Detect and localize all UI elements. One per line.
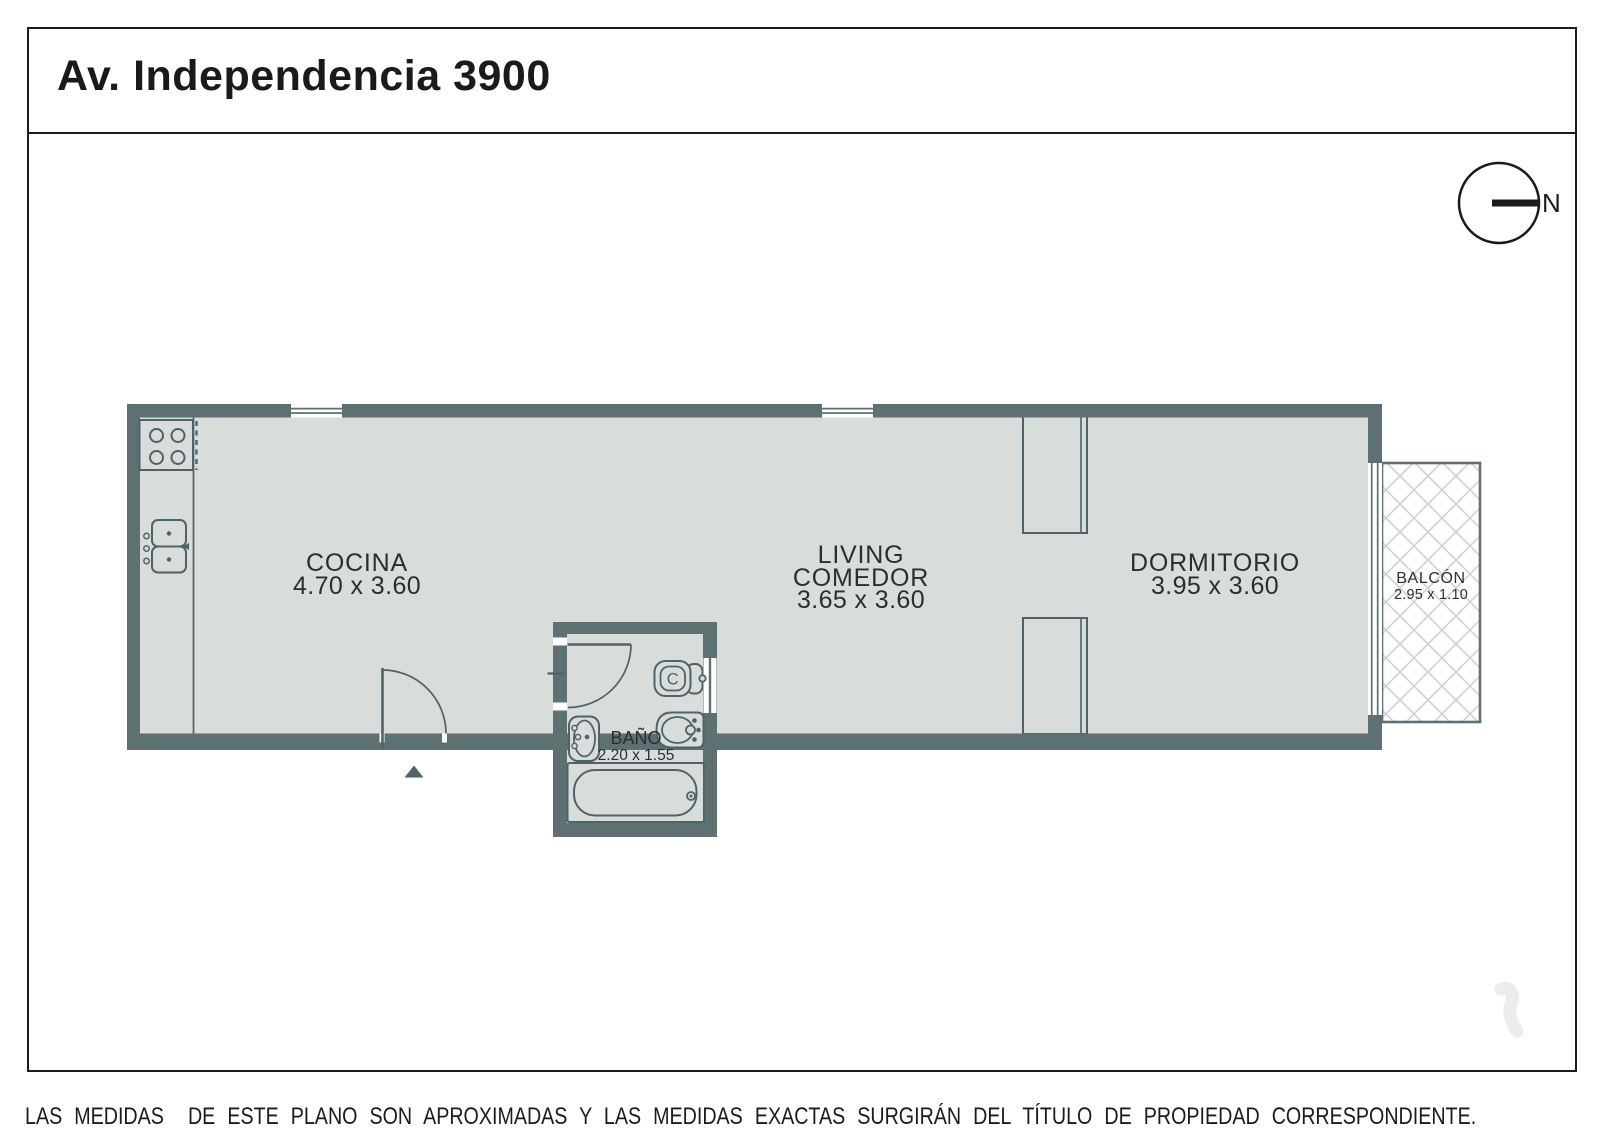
balcony-door-window	[1368, 463, 1382, 715]
living-label: LIVING COMEDOR 3.65 x 3.60	[793, 544, 929, 612]
bedroom-label: DORMITORIO 3.95 x 3.60	[1130, 552, 1300, 597]
compass-north-label: N	[1542, 188, 1561, 218]
toilet-glyph: C	[667, 671, 679, 689]
footer: LAS MEDIDAS DE ESTE PLANO SON APROXIMADA…	[25, 1103, 1578, 1131]
bathroom-wall-left	[553, 622, 567, 837]
wall-bottom	[127, 734, 1382, 751]
bathroom-wall-right	[703, 622, 717, 837]
bathroom-sink-icon	[569, 717, 599, 762]
bathroom-label: BAÑO 2.20 x 1.55	[598, 730, 675, 764]
balcony-label: BALCÓN 2.95 x 1.10	[1394, 571, 1468, 603]
living-dims: 3.65 x 3.60	[793, 589, 929, 612]
kitchen-window	[291, 404, 342, 418]
bathroom-name: BAÑO	[598, 730, 675, 747]
compass-icon: N	[1459, 163, 1561, 243]
bathroom-wall-top	[553, 622, 717, 634]
watermark-mark	[1501, 988, 1517, 1031]
balcony-dims: 2.95 x 1.10	[1394, 587, 1468, 603]
balcony-name: BALCÓN	[1394, 571, 1468, 587]
toilet-icon: C	[655, 661, 706, 696]
bathroom-dims: 2.20 x 1.55	[598, 747, 675, 764]
kitchen-dims: 4.70 x 3.60	[293, 575, 421, 598]
living-window	[822, 404, 873, 418]
kitchen-label: COCINA 4.70 x 3.60	[293, 552, 421, 597]
stove-icon	[140, 420, 197, 470]
footer-disclaimer: LAS MEDIDAS DE ESTE PLANO SON APROXIMADA…	[25, 1103, 1476, 1131]
entrance-arrow-icon	[405, 766, 424, 778]
bathroom-window	[704, 658, 717, 713]
floor-plan-page: Av. Independencia 3900	[0, 0, 1600, 1131]
bedroom-dims: 3.95 x 3.60	[1130, 575, 1300, 598]
bathtub-icon	[568, 763, 705, 822]
wall-left	[127, 404, 140, 750]
bathroom-wall-bottom	[553, 823, 717, 837]
